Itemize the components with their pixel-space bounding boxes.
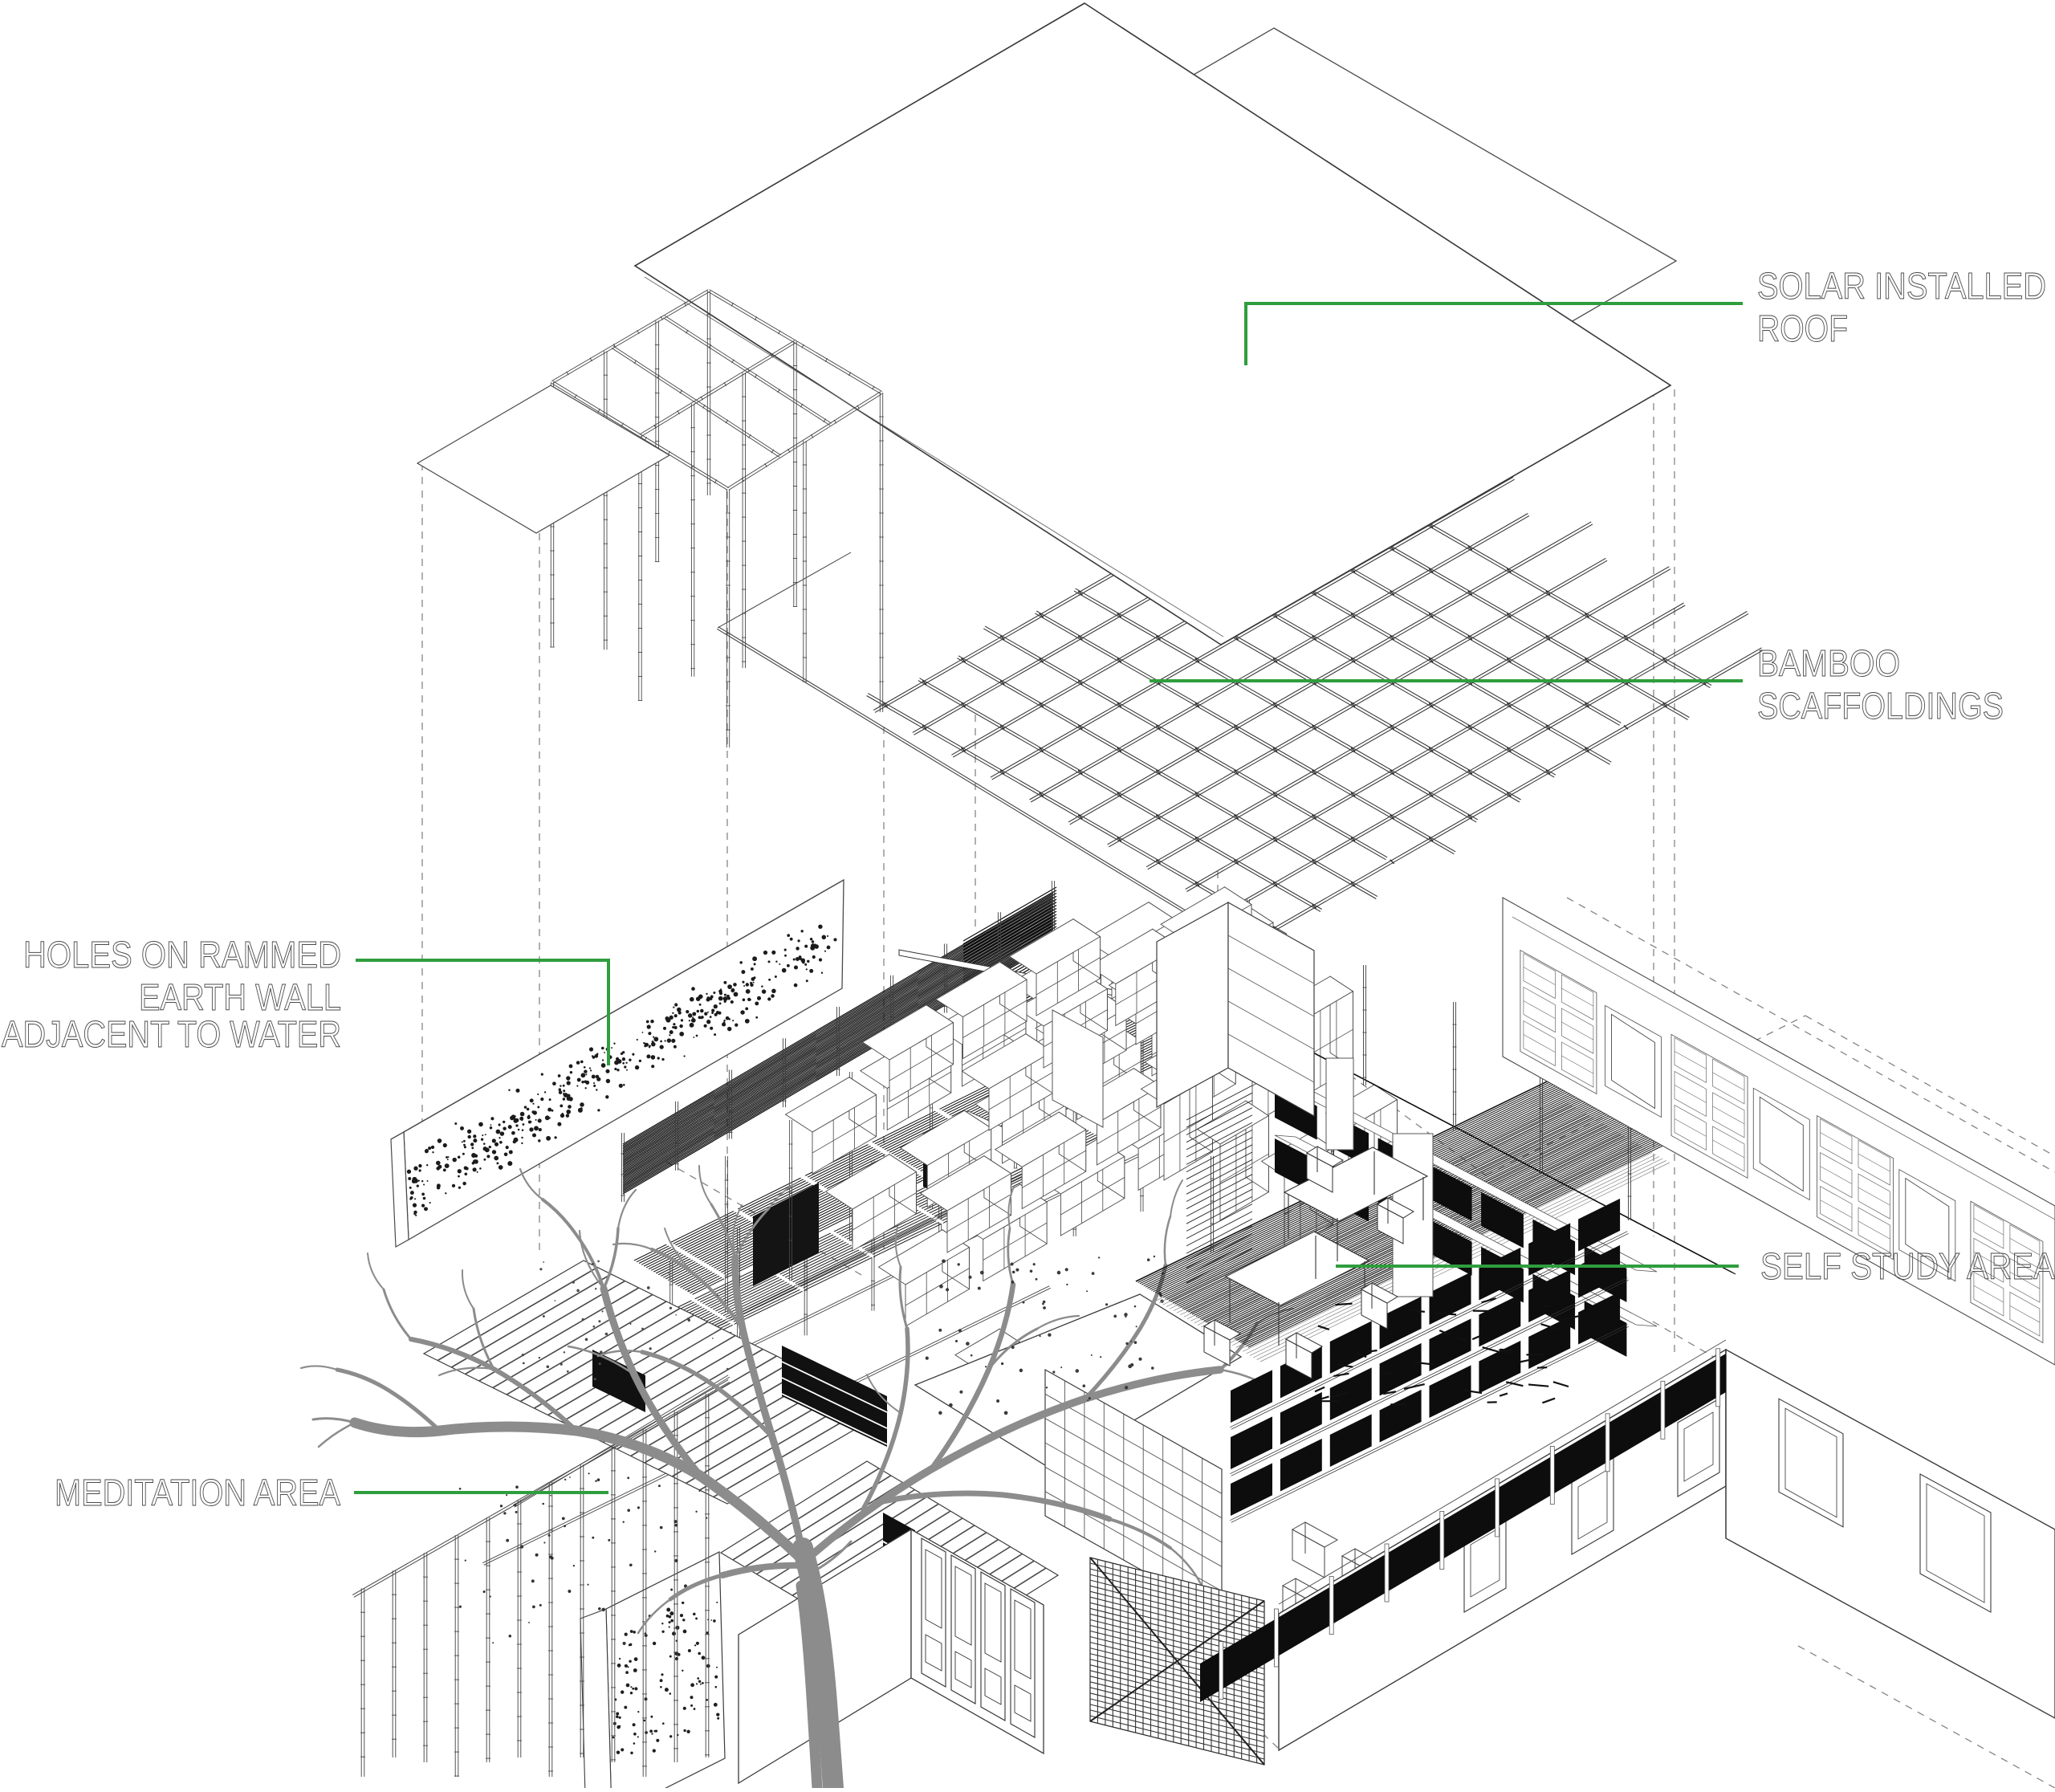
svg-text:SCAFFOLDINGS: SCAFFOLDINGS	[1757, 685, 2004, 727]
svg-text:SOLAR INSTALLED: SOLAR INSTALLED	[1757, 265, 2046, 307]
svg-text:MEDITATION AREA: MEDITATION AREA	[55, 1472, 340, 1513]
svg-text:HOLES ON RAMMED: HOLES ON RAMMED	[23, 934, 341, 975]
svg-text:ROOF: ROOF	[1757, 307, 1848, 349]
svg-text:BAMBOO: BAMBOO	[1757, 642, 1900, 684]
svg-text:EARTH WALL: EARTH WALL	[139, 976, 341, 1018]
svg-text:SELF STUDY AREA: SELF STUDY AREA	[1760, 1245, 2055, 1287]
svg-text:ADJACENT TO WATER: ADJACENT TO WATER	[2, 1013, 341, 1055]
